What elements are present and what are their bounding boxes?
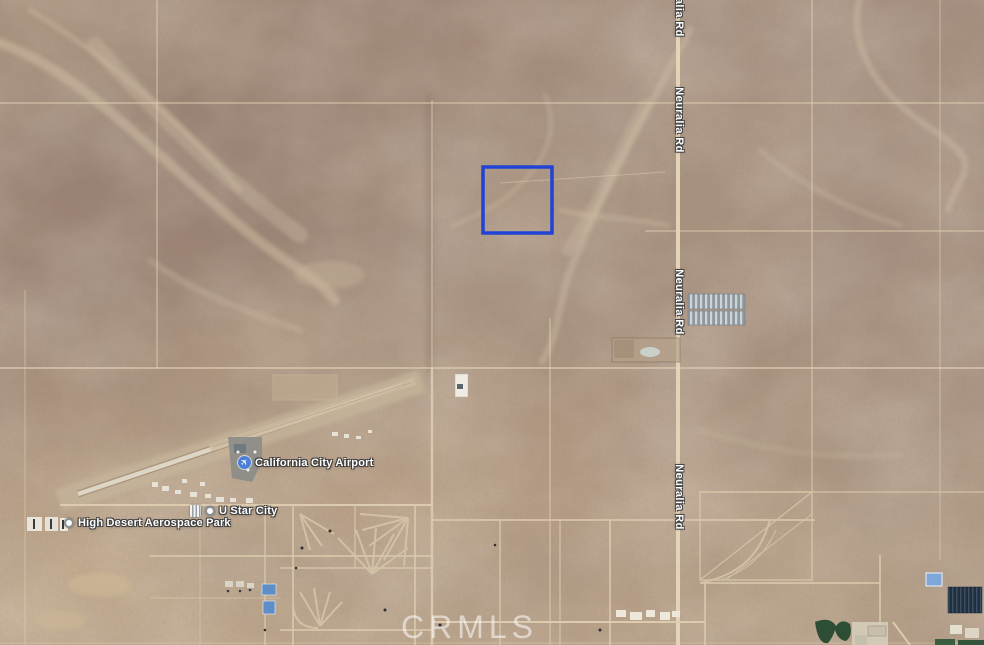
road-label-neuralia-1: Neuralia Rd xyxy=(673,0,685,37)
road-label-neuralia-3: Neuralia Rd xyxy=(673,269,685,335)
storage-icon xyxy=(190,505,201,517)
poi-label: California City Airport xyxy=(255,457,373,469)
road-label-neuralia-2: Neuralia Rd xyxy=(673,87,685,153)
poi-high-desert-aerospace-park: High Desert Aerospace Park xyxy=(64,517,231,529)
pond xyxy=(640,347,660,357)
blue-building xyxy=(926,573,942,586)
satellite-map-screenshot: Neuralia Rd Neuralia Rd Neuralia Rd Neur… xyxy=(0,0,984,645)
poi-label: U Star City xyxy=(219,505,277,517)
solar-array-southeast xyxy=(948,587,982,613)
place-dot-icon xyxy=(205,506,215,516)
fenced-yard xyxy=(273,375,337,400)
poi-u-star-city: U Star City xyxy=(190,505,277,517)
satellite-imagery xyxy=(0,0,984,645)
place-dot-icon xyxy=(64,518,74,528)
poi-california-city-airport: ✈ California City Airport xyxy=(238,456,373,469)
poi-label: High Desert Aerospace Park xyxy=(78,517,231,529)
crmls-watermark: CRMLS xyxy=(401,609,538,645)
road-label-neuralia-4: Neuralia Rd xyxy=(673,464,685,530)
solar-array-north xyxy=(688,294,745,309)
blue-roof-building xyxy=(262,584,276,595)
airport-icon: ✈ xyxy=(238,456,251,469)
